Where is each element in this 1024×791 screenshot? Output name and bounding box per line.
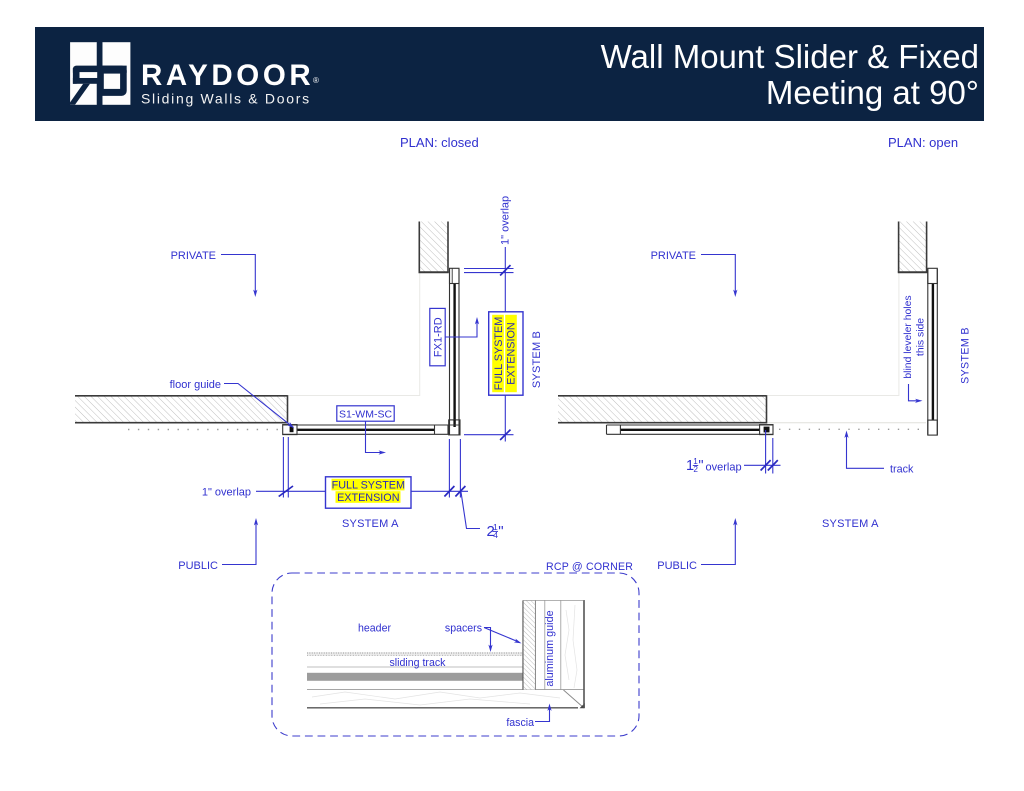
svg-text:header: header <box>358 623 391 635</box>
svg-text:fascia: fascia <box>506 717 534 729</box>
svg-text:S1-WM-SC: S1-WM-SC <box>339 408 392 420</box>
svg-text:": " <box>698 458 703 474</box>
svg-text:SYSTEM A: SYSTEM A <box>822 518 879 530</box>
svg-text:PRIVATE: PRIVATE <box>651 250 696 262</box>
svg-text:SYSTEM A: SYSTEM A <box>342 518 399 530</box>
svg-text:spacers: spacers <box>445 623 482 635</box>
svg-text:SYSTEM B: SYSTEM B <box>531 331 543 388</box>
svg-text:FX1-RD: FX1-RD <box>433 317 445 357</box>
svg-text:overlap: overlap <box>706 462 742 474</box>
svg-text:": " <box>498 523 503 540</box>
svg-text:SYSTEM B: SYSTEM B <box>960 327 972 384</box>
svg-text:floor guide: floor guide <box>170 379 221 391</box>
svg-text:®: ® <box>313 76 319 85</box>
svg-text:Sliding Walls & Doors: Sliding Walls & Doors <box>141 91 311 107</box>
svg-text:sliding track: sliding track <box>390 657 447 669</box>
svg-text:this side: this side <box>916 318 927 356</box>
svg-text:FULL SYSTEM: FULL SYSTEM <box>493 317 505 390</box>
svg-text:RCP @ CORNER: RCP @ CORNER <box>546 561 633 573</box>
svg-text:1" overlap: 1" overlap <box>500 196 512 245</box>
svg-text:track: track <box>890 464 914 476</box>
svg-text:Meeting at 90°: Meeting at 90° <box>766 74 979 111</box>
svg-text:EXTENSION: EXTENSION <box>505 322 517 384</box>
svg-text:EXTENSION: EXTENSION <box>337 492 399 504</box>
svg-text:FULL SYSTEM: FULL SYSTEM <box>332 479 405 491</box>
svg-text:Wall Mount Slider & Fixed: Wall Mount Slider & Fixed <box>601 38 979 75</box>
svg-text:PUBLIC: PUBLIC <box>657 560 697 572</box>
svg-text:PLAN: closed: PLAN: closed <box>400 135 479 150</box>
svg-text:aluminum guide: aluminum guide <box>544 610 556 686</box>
svg-text:PRIVATE: PRIVATE <box>171 250 216 262</box>
svg-text:blind leveler holes: blind leveler holes <box>903 295 914 378</box>
svg-text:PLAN: open: PLAN: open <box>888 135 958 150</box>
svg-text:PUBLIC: PUBLIC <box>178 560 218 572</box>
svg-text:1" overlap: 1" overlap <box>202 487 251 499</box>
svg-text:RAYDOOR: RAYDOOR <box>141 59 314 92</box>
